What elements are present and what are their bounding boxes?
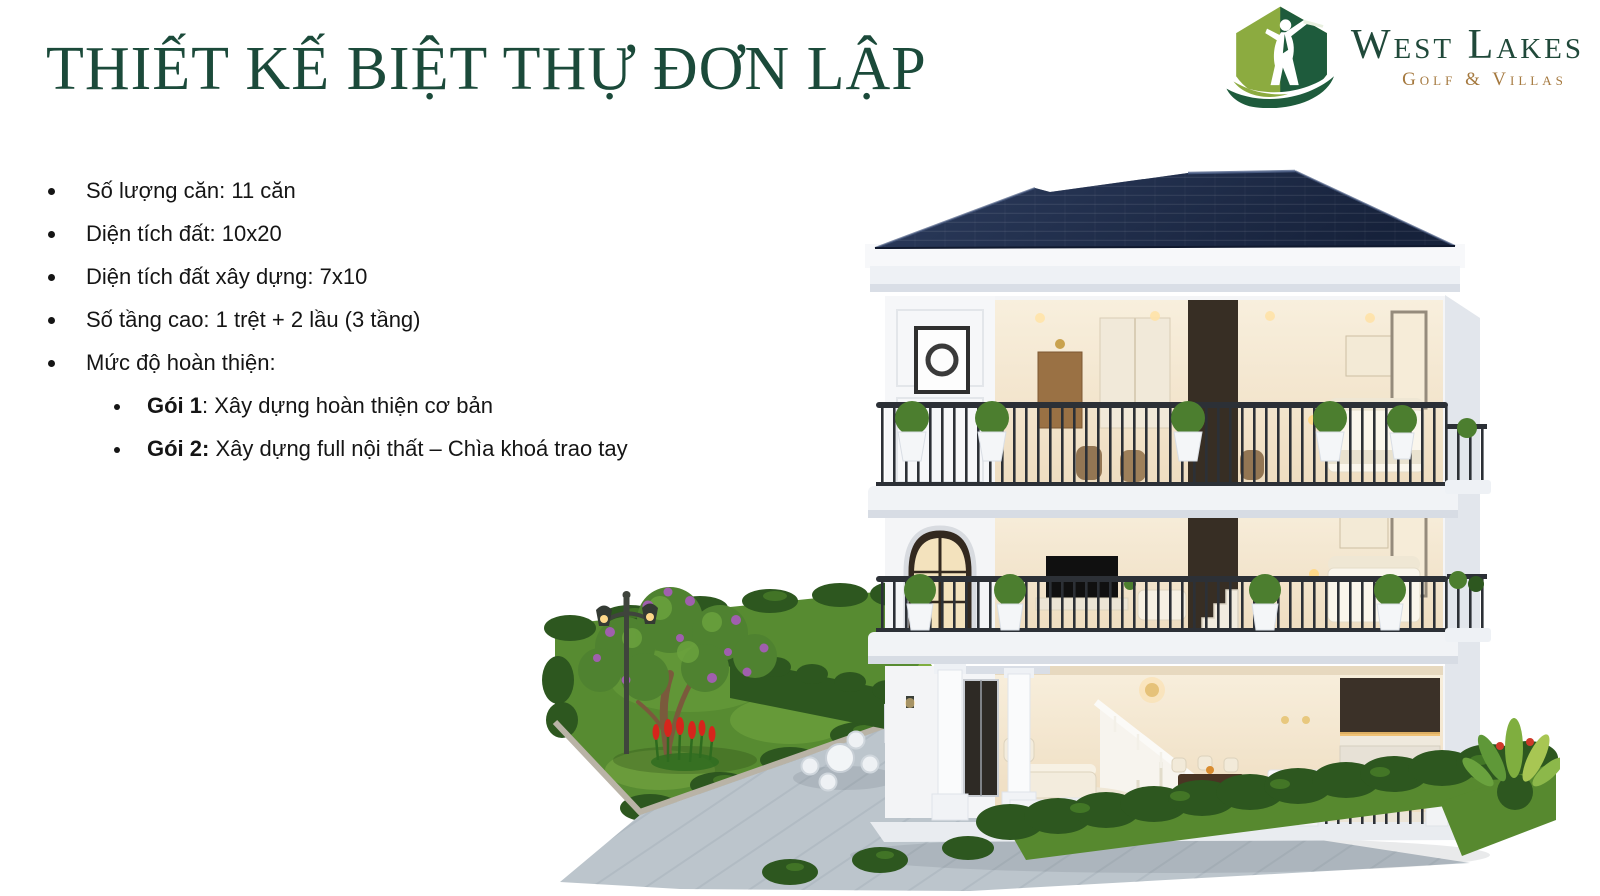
side-balcony-upper [1445, 418, 1491, 494]
villa-rendering [540, 160, 1560, 893]
package-label: Gói 2: [147, 436, 209, 461]
bullet-dot-icon [114, 404, 120, 410]
bullet-dot-icon [48, 188, 55, 195]
balcony-railing [876, 406, 1448, 486]
column [938, 670, 962, 796]
spec-text: Diện tích đất: 10x20 [86, 221, 282, 247]
brand-logo: West Lakes Golf & Villas [1223, 4, 1584, 108]
bullet-dot-icon [48, 317, 55, 324]
column [1008, 674, 1030, 794]
spec-text: Mức độ hoàn thiện: [86, 350, 276, 376]
package-label: Gói 1 [147, 393, 202, 418]
spec-text: Số tầng cao: 1 trệt + 2 lầu (3 tầng) [86, 307, 421, 333]
slide: THIẾT KẾ BIỆT THỰ ĐƠN LẬP West Lakes Gol… [0, 0, 1600, 896]
package-text: Gói 1: Xây dựng hoàn thiện cơ bản [147, 393, 493, 419]
side-balcony-lower [1445, 571, 1491, 642]
golfer-swing-icon [1223, 4, 1341, 108]
bullet-dot-icon [48, 274, 55, 281]
page-title: THIẾT KẾ BIỆT THỰ ĐƠN LẬP [46, 34, 927, 105]
spec-text: Diện tích đất xây dựng: 7x10 [86, 264, 367, 290]
brand-name: West Lakes [1351, 23, 1584, 67]
balcony-railing [876, 580, 1448, 632]
middle-balcony [868, 574, 1458, 664]
wall-lantern-icon [905, 696, 915, 708]
brand-wordmark: West Lakes Golf & Villas [1351, 23, 1584, 88]
bullet-dot-icon [48, 231, 55, 238]
spec-text: Số lượng căn: 11 căn [86, 178, 296, 204]
bullet-dot-icon [114, 447, 120, 453]
villa-illustration [540, 160, 1560, 893]
brand-tagline: Golf & Villas [1368, 70, 1567, 89]
side-wall [1445, 295, 1480, 800]
top-balcony [868, 401, 1458, 518]
enso-artwork [916, 328, 968, 392]
villa-roof [865, 171, 1465, 292]
package-desc: : Xây dựng hoàn thiện cơ bản [202, 393, 493, 418]
bullet-dot-icon [48, 360, 55, 367]
porch-columns [885, 664, 1050, 820]
